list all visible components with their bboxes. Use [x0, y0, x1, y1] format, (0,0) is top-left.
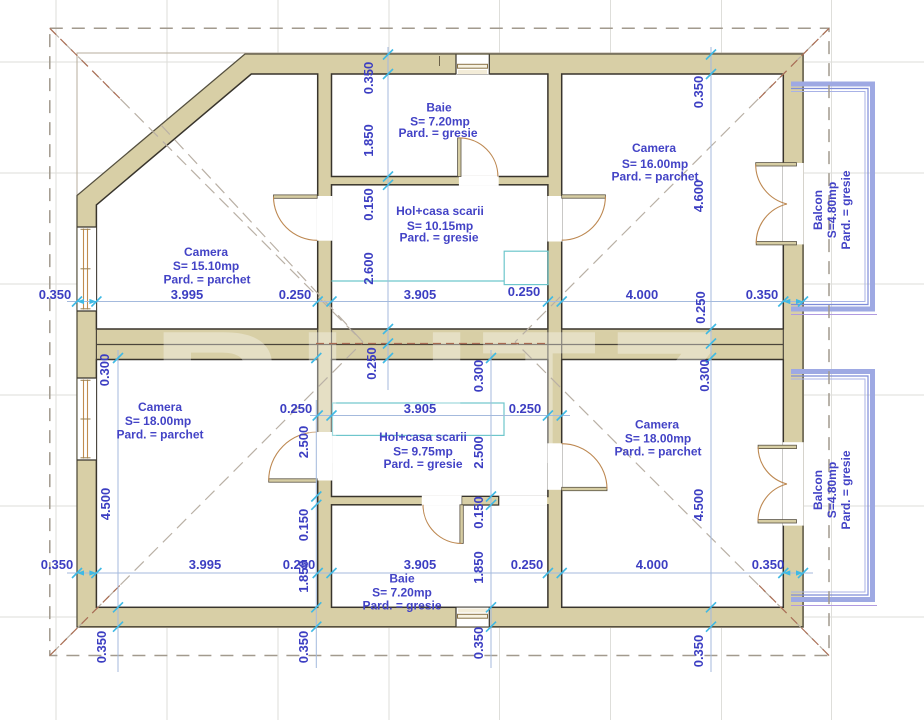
svg-text:4.500: 4.500	[691, 489, 706, 522]
svg-text:0.350: 0.350	[39, 287, 72, 302]
svg-text:0.350: 0.350	[94, 631, 109, 664]
svg-text:0.150: 0.150	[471, 496, 486, 529]
svg-text:Hol+casa scarii: Hol+casa scarii	[379, 430, 467, 444]
svg-text:2.500: 2.500	[471, 436, 486, 469]
svg-text:S= 15.10mp: S= 15.10mp	[173, 259, 239, 273]
svg-text:2.600: 2.600	[361, 252, 376, 285]
svg-text:4.500: 4.500	[98, 488, 113, 521]
svg-text:Pard. = parchet: Pard. = parchet	[611, 170, 698, 184]
svg-text:0.150: 0.150	[361, 188, 376, 221]
svg-text:S= 7.20mp: S= 7.20mp	[372, 586, 432, 600]
svg-text:0.250: 0.250	[508, 284, 541, 299]
svg-text:1.850: 1.850	[361, 124, 376, 157]
svg-text:Pard. = gresie: Pard. = gresie	[399, 231, 478, 245]
svg-text:0.250: 0.250	[280, 401, 313, 416]
svg-text:0.350: 0.350	[41, 557, 74, 572]
svg-text:0.350: 0.350	[691, 635, 706, 668]
svg-text:4.000: 4.000	[626, 287, 659, 302]
svg-text:Pard. = gresie: Pard. = gresie	[839, 450, 853, 529]
svg-text:S=4.80mp: S=4.80mp	[825, 462, 839, 518]
svg-text:3.995: 3.995	[171, 287, 204, 302]
svg-text:Pard. = gresie: Pard. = gresie	[383, 457, 462, 471]
svg-text:0.250: 0.250	[279, 287, 312, 302]
svg-text:0.300: 0.300	[697, 359, 712, 392]
svg-text:Pard. = parchet: Pard. = parchet	[163, 273, 250, 287]
svg-text:0.350: 0.350	[361, 62, 376, 95]
svg-text:Camera: Camera	[184, 245, 228, 259]
svg-text:Camera: Camera	[138, 400, 182, 414]
svg-text:0.250: 0.250	[693, 291, 708, 324]
svg-text:0.350: 0.350	[746, 287, 779, 302]
svg-text:2.500: 2.500	[296, 426, 311, 459]
svg-text:Camera: Camera	[632, 141, 676, 155]
svg-text:0.250: 0.250	[364, 347, 379, 380]
svg-text:1.850: 1.850	[471, 551, 486, 584]
svg-text:1.850: 1.850	[296, 560, 311, 593]
svg-text:0.350: 0.350	[752, 557, 785, 572]
svg-text:Pard. = gresie: Pard. = gresie	[362, 599, 441, 613]
svg-text:0.250: 0.250	[509, 401, 542, 416]
svg-text:0.350: 0.350	[691, 76, 706, 109]
svg-text:3.995: 3.995	[189, 557, 222, 572]
svg-text:Pard. = parchet: Pard. = parchet	[614, 445, 701, 459]
svg-text:4.000: 4.000	[636, 557, 669, 572]
svg-text:Balcon: Balcon	[811, 190, 825, 230]
svg-text:3.905: 3.905	[404, 557, 437, 572]
svg-text:4.600: 4.600	[691, 180, 706, 213]
svg-text:S= 18.00mp: S= 18.00mp	[625, 432, 691, 446]
svg-text:0.300: 0.300	[97, 354, 112, 387]
svg-text:Pard. = parchet: Pard. = parchet	[116, 428, 203, 442]
svg-text:Balcon: Balcon	[811, 470, 825, 510]
svg-text:Hol+casa scarii: Hol+casa scarii	[396, 204, 484, 218]
svg-text:Pard. = gresie: Pard. = gresie	[398, 126, 477, 140]
svg-text:BLITZ: BLITZ	[151, 292, 729, 504]
svg-text:0.350: 0.350	[471, 627, 486, 660]
svg-text:Baie: Baie	[426, 101, 452, 115]
svg-text:3.905: 3.905	[404, 401, 437, 416]
svg-text:0.150: 0.150	[296, 509, 311, 542]
svg-text:0.250: 0.250	[511, 557, 544, 572]
svg-text:0.350: 0.350	[296, 631, 311, 664]
svg-text:Pard. = gresie: Pard. = gresie	[839, 170, 853, 249]
svg-text:3.905: 3.905	[404, 287, 437, 302]
svg-text:Baie: Baie	[389, 572, 415, 586]
svg-text:Camera: Camera	[635, 418, 679, 432]
svg-text:S= 18.00mp: S= 18.00mp	[125, 414, 191, 428]
svg-text:0.300: 0.300	[471, 360, 486, 393]
svg-text:S=4.80mp: S=4.80mp	[825, 182, 839, 238]
